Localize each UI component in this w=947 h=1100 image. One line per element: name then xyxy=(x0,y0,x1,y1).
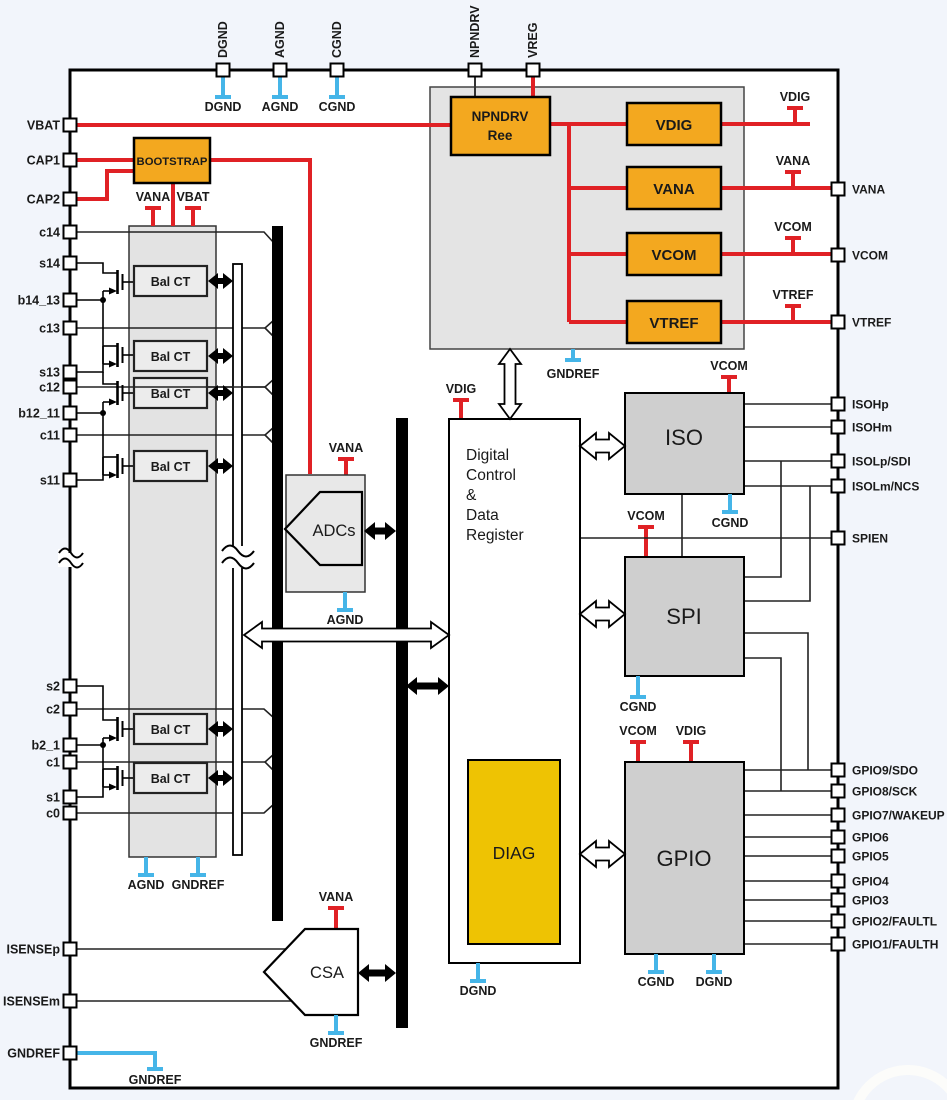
svg-text:VTREF: VTREF xyxy=(649,315,698,332)
svg-text:GPIO2/FAULTL: GPIO2/FAULTL xyxy=(852,915,937,929)
svg-text:s13: s13 xyxy=(39,366,60,380)
svg-text:AGND: AGND xyxy=(273,21,287,58)
svg-text:NPNDRV: NPNDRV xyxy=(468,5,482,58)
svg-text:s11: s11 xyxy=(40,474,60,488)
svg-text:DGND: DGND xyxy=(696,975,733,989)
svg-text:VANA: VANA xyxy=(136,190,171,204)
svg-text:VCOM: VCOM xyxy=(619,724,657,738)
svg-text:GNDREF: GNDREF xyxy=(129,1073,182,1087)
svg-text:VANA: VANA xyxy=(852,183,885,197)
svg-text:AGND: AGND xyxy=(327,613,364,627)
svg-text:GPIO7/WAKEUP: GPIO7/WAKEUP xyxy=(852,809,945,823)
svg-text:s2: s2 xyxy=(46,680,60,694)
svg-text:DGND: DGND xyxy=(205,100,242,114)
svg-text:GPIO6: GPIO6 xyxy=(852,831,889,845)
svg-text:SPI: SPI xyxy=(666,604,701,629)
svg-text:&: & xyxy=(466,487,477,504)
svg-text:VTREF: VTREF xyxy=(852,316,891,330)
svg-text:ISENSEm: ISENSEm xyxy=(3,995,60,1009)
svg-text:VDIG: VDIG xyxy=(676,724,707,738)
svg-text:VANA: VANA xyxy=(329,441,364,455)
svg-text:Bal CT: Bal CT xyxy=(151,772,191,786)
svg-text:AGND: AGND xyxy=(262,100,299,114)
svg-text:VBAT: VBAT xyxy=(176,190,209,204)
svg-text:VDIG: VDIG xyxy=(656,117,693,134)
svg-text:Bal CT: Bal CT xyxy=(151,350,191,364)
svg-text:ISO: ISO xyxy=(665,425,703,450)
svg-text:c2: c2 xyxy=(46,703,60,717)
svg-text:NPNDRV: NPNDRV xyxy=(472,109,529,124)
svg-text:c14: c14 xyxy=(39,226,60,240)
svg-text:c0: c0 xyxy=(46,807,60,821)
svg-text:VDIG: VDIG xyxy=(446,382,477,396)
svg-text:VCOM: VCOM xyxy=(627,509,665,523)
svg-text:CAP1: CAP1 xyxy=(27,154,60,168)
svg-text:c12: c12 xyxy=(39,381,60,395)
svg-text:Bal CT: Bal CT xyxy=(151,723,191,737)
svg-text:s1: s1 xyxy=(46,791,60,805)
svg-text:Digital: Digital xyxy=(466,447,509,464)
svg-text:SPIEN: SPIEN xyxy=(852,532,888,546)
svg-text:Register: Register xyxy=(466,527,524,544)
svg-text:DIAG: DIAG xyxy=(493,843,536,863)
svg-text:GPIO3: GPIO3 xyxy=(852,894,889,908)
svg-text:b14_13: b14_13 xyxy=(18,294,60,308)
svg-text:ISOHm: ISOHm xyxy=(852,421,892,435)
svg-text:ISOLm/NCS: ISOLm/NCS xyxy=(852,480,919,494)
svg-text:CGND: CGND xyxy=(620,700,657,714)
svg-text:GPIO: GPIO xyxy=(656,846,711,871)
svg-text:VANA: VANA xyxy=(776,154,811,168)
svg-text:AGND: AGND xyxy=(128,878,165,892)
svg-text:VCOM: VCOM xyxy=(852,249,888,263)
svg-text:GPIO5: GPIO5 xyxy=(852,850,889,864)
svg-text:Ree: Ree xyxy=(488,128,513,143)
svg-text:ISENSEp: ISENSEp xyxy=(7,943,61,957)
svg-text:ADCs: ADCs xyxy=(312,522,355,540)
svg-text:GNDREF: GNDREF xyxy=(547,367,600,381)
svg-text:VCOM: VCOM xyxy=(652,247,697,264)
svg-text:BOOTSTRAP: BOOTSTRAP xyxy=(137,156,208,168)
svg-text:GPIO4: GPIO4 xyxy=(852,875,889,889)
svg-text:CAP2: CAP2 xyxy=(27,193,60,207)
svg-text:Data: Data xyxy=(466,507,499,524)
svg-text:c11: c11 xyxy=(40,429,60,443)
svg-text:VANA: VANA xyxy=(319,890,354,904)
svg-text:GNDREF: GNDREF xyxy=(310,1036,363,1050)
svg-text:VANA: VANA xyxy=(653,181,695,198)
svg-text:CGND: CGND xyxy=(319,100,356,114)
svg-text:b2_1: b2_1 xyxy=(32,739,61,753)
svg-text:Bal CT: Bal CT xyxy=(151,460,191,474)
svg-text:Bal CT: Bal CT xyxy=(151,387,191,401)
svg-text:GPIO8/SCK: GPIO8/SCK xyxy=(852,785,918,799)
svg-text:c13: c13 xyxy=(39,322,60,336)
svg-text:CGND: CGND xyxy=(638,975,675,989)
svg-text:DGND: DGND xyxy=(216,21,230,58)
svg-text:GPIO9/SDO: GPIO9/SDO xyxy=(852,764,918,778)
svg-text:GNDREF: GNDREF xyxy=(172,878,225,892)
svg-text:CGND: CGND xyxy=(330,21,344,58)
svg-text:VBAT: VBAT xyxy=(27,119,60,133)
svg-text:CGND: CGND xyxy=(712,516,749,530)
svg-text:VREG: VREG xyxy=(526,23,540,58)
svg-text:VTREF: VTREF xyxy=(773,288,814,302)
svg-text:CSA: CSA xyxy=(310,964,344,982)
svg-text:Bal CT: Bal CT xyxy=(151,275,191,289)
svg-text:GPIO1/FAULTH: GPIO1/FAULTH xyxy=(852,938,938,952)
svg-text:c1: c1 xyxy=(46,756,60,770)
svg-text:VCOM: VCOM xyxy=(710,359,748,373)
svg-text:ISOLp/SDI: ISOLp/SDI xyxy=(852,455,911,469)
svg-text:s14: s14 xyxy=(39,257,60,271)
svg-text:VDIG: VDIG xyxy=(780,90,811,104)
svg-text:GNDREF: GNDREF xyxy=(7,1047,60,1061)
svg-text:b12_11: b12_11 xyxy=(18,407,60,421)
svg-text:ISOHp: ISOHp xyxy=(852,398,889,412)
svg-text:DGND: DGND xyxy=(460,984,497,998)
svg-text:VCOM: VCOM xyxy=(774,220,812,234)
svg-text:Control: Control xyxy=(466,467,516,484)
